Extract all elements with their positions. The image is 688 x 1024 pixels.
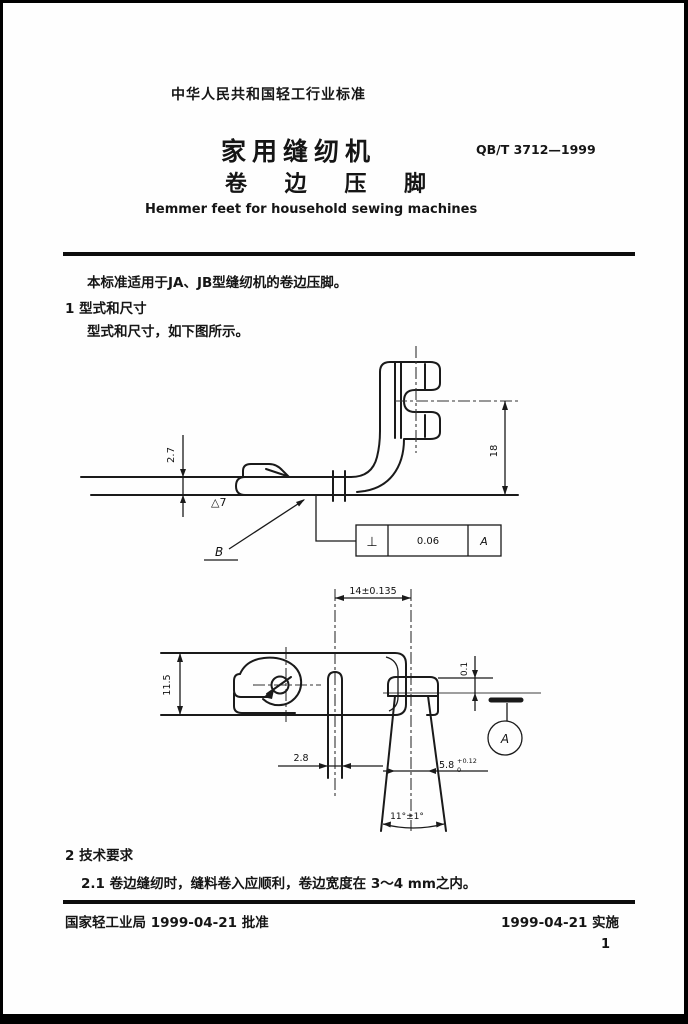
arrowhead xyxy=(383,822,391,828)
arrowhead xyxy=(502,401,508,410)
page-number: 1 xyxy=(601,937,610,952)
scope-paragraph: 本标准适用于JA、JB型缝纫机的卷边压脚。 xyxy=(87,271,347,291)
arrowhead xyxy=(177,706,183,715)
dim-toe-tol-lower: 0 xyxy=(457,766,461,774)
section-1-heading: 1 型式和尺寸 xyxy=(65,297,147,317)
arrowhead xyxy=(428,768,436,774)
dim-sole-thickness-label: 2.7 xyxy=(166,447,177,463)
section-2-text: 2.1 卷边缝纫时，缝料卷入应顺利，卷边宽度在 3～4 mm之内。 xyxy=(81,872,476,892)
arrowhead xyxy=(387,768,395,774)
top-view-drawing: 14±0.135 11.5 2.8 5.8 +0.12 xyxy=(143,581,573,843)
implementation-line: 1999-04-21 实施 xyxy=(501,911,619,931)
standard-subtitle-cn: 卷 边 压 脚 xyxy=(225,166,441,198)
datum-a-label: A xyxy=(500,732,509,746)
section-2-heading: 2 技术要求 xyxy=(65,844,133,864)
arrowhead xyxy=(472,693,478,701)
arrowhead xyxy=(342,763,351,769)
arrowhead xyxy=(180,469,186,477)
tolerance-leader xyxy=(316,495,356,541)
approval-line: 国家轻工业局 1999-04-21 批准 xyxy=(65,911,269,931)
surface-roughness-symbol: △7 xyxy=(211,496,226,509)
section-1-text: 型式和尺寸，如下图所示。 xyxy=(87,320,249,340)
dim-toe-angle-label: 11°±1° xyxy=(390,812,424,822)
dim-toe-width-label: 5.8 xyxy=(439,760,454,771)
dim-body-width-label: 11.5 xyxy=(162,674,173,695)
foot-body-outline xyxy=(161,653,406,715)
dim-slot-width-label: 2.8 xyxy=(293,753,308,764)
standard-document-page: 中华人民共和国轻工行业标准 家用缝纫机 QB/T 3712—1999 卷 边 压… xyxy=(0,0,688,1024)
datum-b-label: B xyxy=(215,545,223,559)
header-rule xyxy=(63,252,635,256)
toe-leg-left xyxy=(381,696,395,831)
arrowhead xyxy=(402,595,411,601)
arrowhead xyxy=(436,822,444,828)
authority-line: 中华人民共和国轻工行业标准 xyxy=(171,84,366,104)
standard-title-en: Hemmer feet for household sewing machine… xyxy=(145,202,477,217)
arrowhead xyxy=(319,763,328,769)
arrowhead xyxy=(180,495,186,503)
angle-arc xyxy=(383,824,444,828)
side-view-drawing: 18 2.7 △7 B ⊥ 0.06 A xyxy=(73,343,553,578)
tolerance-value: 0.06 xyxy=(417,536,439,547)
datum-b-leader xyxy=(229,500,304,549)
sole-left-cap xyxy=(236,477,245,495)
dim-toe-tol-upper: +0.12 xyxy=(457,757,477,765)
standard-title-cn: 家用缝纫机 xyxy=(221,132,376,168)
dim-fork-height-label: 18 xyxy=(489,445,500,458)
dim-slot-to-toe-label: 14±0.135 xyxy=(349,586,396,597)
scroll-outer-spiral xyxy=(263,666,301,705)
tolerance-datum: A xyxy=(479,535,488,548)
arrowhead xyxy=(296,499,305,507)
standard-code: QB/T 3712—1999 xyxy=(476,142,596,157)
arrowhead xyxy=(502,486,508,495)
dim-plane-offset-label: 0.1 xyxy=(460,662,470,676)
arrowhead xyxy=(472,670,478,678)
scroll-lip xyxy=(234,674,271,697)
footer-rule xyxy=(63,900,635,904)
perpendicularity-icon: ⊥ xyxy=(366,535,377,550)
arrowhead xyxy=(177,653,183,662)
arrowhead xyxy=(335,595,344,601)
